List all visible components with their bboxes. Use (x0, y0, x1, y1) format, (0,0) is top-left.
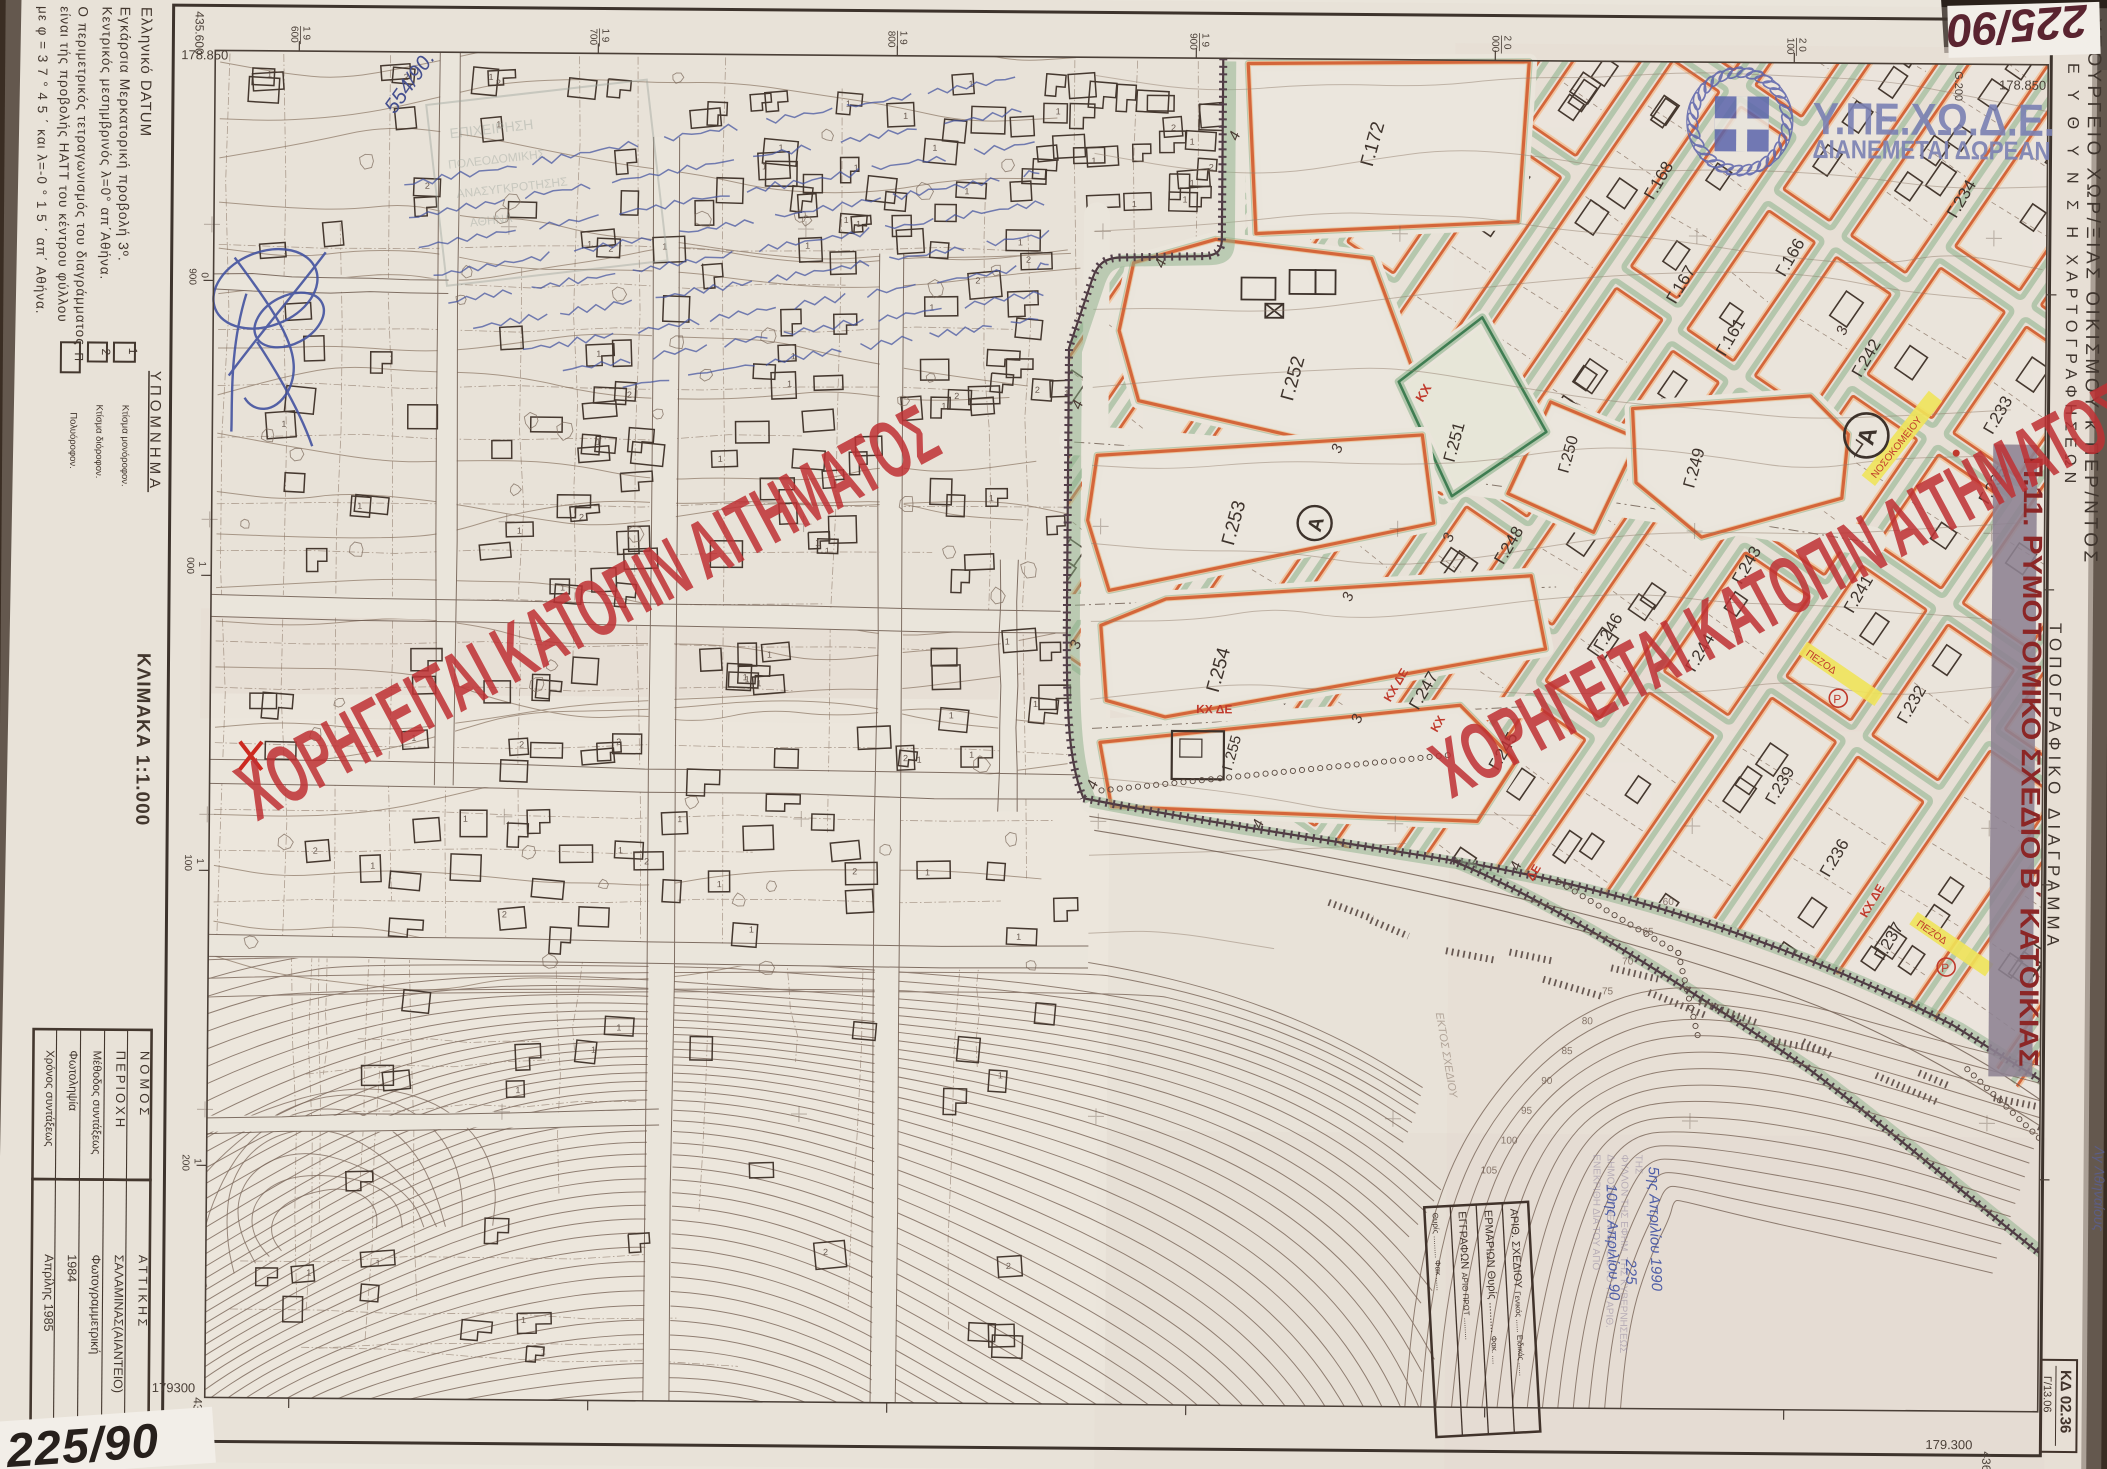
svg-text:1: 1 (521, 1315, 526, 1325)
svg-text:2: 2 (644, 856, 649, 866)
svg-text:1: 1 (762, 161, 767, 171)
svg-text:Ρ: Ρ (1941, 961, 1949, 975)
svg-text:200: 200 (180, 1154, 191, 1171)
svg-text:Ρ: Ρ (1833, 692, 1841, 706)
svg-text:1: 1 (517, 526, 522, 536)
svg-text:1: 1 (677, 814, 682, 824)
svg-text:Απρίλης 1985: Απρίλης 1985 (41, 1254, 56, 1332)
svg-text:Π.11. ΡΥΜΟΤΟΜΙΚΟ ΣΧΕΔΙΟ Β΄ ΚΑΤ: Π.11. ΡΥΜΟΤΟΜΙΚΟ ΣΧΕΔΙΟ Β΄ ΚΑΤΟΙΚΙΑΣ (2013, 457, 2048, 1067)
svg-text:2: 2 (616, 737, 621, 747)
svg-text:ΔΙΑΝΕΜΕΤΑΙ ΔΩΡΕΑΝ: ΔΙΑΝΕΜΕΤΑΙ ΔΩΡΕΑΝ (1812, 134, 2050, 166)
svg-text:1: 1 (756, 678, 761, 688)
svg-text:1: 1 (717, 879, 722, 889)
svg-text:1: 1 (281, 419, 286, 429)
svg-text:1: 1 (787, 379, 792, 389)
svg-text:1: 1 (846, 99, 851, 109)
svg-text:2: 2 (975, 276, 980, 286)
svg-text:100: 100 (182, 854, 193, 871)
svg-text:Π: Π (72, 352, 86, 361)
svg-text:1: 1 (126, 348, 140, 355)
svg-text:ΥΠΟΜΝΗΜΑ: ΥΠΟΜΝΗΜΑ (146, 371, 164, 492)
svg-text:Κεντρικός μεσημβρινός λ=0° απ: Κεντρικός μεσημβρινός λ=0° απ΄Αθήνα. (98, 7, 115, 281)
svg-text:Φωτοληψία: Φωτοληψία (66, 1050, 80, 1111)
svg-text:1: 1 (515, 1085, 520, 1095)
svg-text:1: 1 (267, 69, 272, 79)
svg-text:2: 2 (954, 391, 959, 401)
svg-text:ΚΛΙΜΑΚΑ 1:1.000: ΚΛΙΜΑΚΑ 1:1.000 (131, 653, 153, 827)
svg-text:1: 1 (596, 349, 601, 359)
svg-text:10ης Απριλίου 90: 10ης Απριλίου 90 (1602, 1184, 1622, 1301)
svg-text:225/90: 225/90 (4, 1415, 161, 1469)
svg-text:1: 1 (1183, 195, 1188, 205)
svg-text:1: 1 (1016, 932, 1021, 942)
svg-text:1: 1 (194, 858, 205, 864)
svg-text:90: 90 (1541, 1076, 1553, 1087)
svg-text:2: 2 (1006, 1261, 1011, 1271)
svg-text:5ης Απριλίου 1990: 5ης Απριλίου 1990 (1645, 1166, 1665, 1291)
svg-text:Εγκάρσια Μερκατορική προβολή 3: Εγκάρσια Μερκατορική προβολή 3º. (116, 7, 134, 262)
svg-text:600: 600 (288, 26, 299, 43)
svg-text:700: 700 (587, 28, 598, 45)
svg-text:2: 2 (823, 1247, 828, 1257)
svg-text:ΠΕΡΙΟΧΗ: ΠΕΡΙΟΧΗ (113, 1051, 129, 1131)
svg-text:ΣΑΛΑΜΙΝΑΣ(ΑΙΑΝΤΕΙΟ): ΣΑΛΑΜΙΝΑΣ(ΑΙΑΝΤΕΙΟ) (111, 1255, 126, 1394)
svg-text:60: 60 (1663, 897, 1675, 908)
svg-text:65: 65 (1642, 927, 1654, 938)
svg-text:2: 2 (852, 866, 857, 876)
svg-text:ΕΝΕΚΡΙΘΗ ΔΙΑ ΤΟΥ ΑΠΟ: ΕΝΕΚΡΙΘΗ ΔΙΑ ΤΟΥ ΑΠΟ (1590, 1154, 1602, 1270)
svg-text:Φωτογραμμετρική: Φωτογραμμετρική (88, 1254, 103, 1354)
svg-text:2: 2 (903, 753, 908, 763)
svg-text:2 0: 2 0 (1796, 38, 1807, 52)
svg-text:1: 1 (541, 1346, 546, 1356)
svg-text:Λγ Λθηναίους: Λγ Λθηναίους (2091, 1145, 2107, 1231)
svg-text:1: 1 (941, 401, 946, 411)
svg-text:2: 2 (519, 740, 524, 750)
svg-text:800: 800 (885, 31, 896, 48)
svg-text:1: 1 (903, 111, 908, 121)
svg-text:000: 000 (184, 557, 195, 574)
svg-text:1984: 1984 (65, 1254, 79, 1282)
svg-text:ΤΗΣ: ΤΗΣ (1633, 1155, 1644, 1175)
svg-text:2: 2 (608, 244, 613, 254)
svg-text:178.850: 178.850 (1999, 77, 2046, 92)
svg-text:2: 2 (1171, 123, 1176, 133)
svg-text:100: 100 (1784, 38, 1795, 55)
svg-text:000: 000 (1489, 35, 1500, 52)
svg-text:2: 2 (1026, 255, 1031, 265)
svg-text:80: 80 (1582, 1016, 1594, 1027)
svg-text:1: 1 (718, 454, 723, 464)
svg-text:1: 1 (306, 1268, 311, 1278)
svg-text:1: 1 (488, 72, 493, 82)
svg-text:105: 105 (1481, 1165, 1498, 1176)
svg-text:85: 85 (1561, 1046, 1573, 1057)
svg-text:Πολυόροφον.: Πολυόροφον. (67, 412, 78, 469)
svg-text:70: 70 (1622, 957, 1634, 968)
svg-text:1 9: 1 9 (1199, 33, 1210, 47)
svg-text:100: 100 (1501, 1136, 1518, 1147)
svg-text:1: 1 (745, 674, 750, 684)
svg-text:1: 1 (587, 239, 592, 249)
svg-text:1: 1 (825, 546, 830, 556)
svg-text:1: 1 (998, 1070, 1003, 1080)
svg-text:Α Τ Τ Ι Κ Η Σ: Α Τ Τ Ι Κ Η Σ (135, 1255, 150, 1327)
svg-text:1: 1 (949, 710, 954, 720)
svg-text:1: 1 (370, 861, 375, 871)
svg-text:ΝΟΜΟΣ: ΝΟΜΟΣ (137, 1051, 153, 1120)
svg-text:1: 1 (844, 215, 849, 225)
svg-text:2: 2 (496, 78, 501, 88)
svg-text:Κτίσμα μονόροφον.: Κτίσμα μονόροφον. (119, 405, 131, 487)
svg-text:2: 2 (313, 846, 318, 856)
svg-text:436.200: 436.200 (1979, 1451, 1993, 1469)
svg-text:2 0: 2 0 (1501, 36, 1512, 50)
svg-text:2: 2 (627, 390, 632, 400)
svg-text:Μέθοδος συντάξεως: Μέθοδος συντάξεως (90, 1050, 103, 1155)
svg-text:179300: 179300 (152, 1380, 196, 1395)
svg-text:95: 95 (1521, 1106, 1533, 1117)
svg-text:με φ = 3 7 ° 4 5 ΄ και λ=-0: με φ = 3 7 ° 4 5 ΄ και λ=-0 ° 1 5 ΄ απ΄ … (33, 6, 50, 315)
svg-text:2: 2 (99, 349, 113, 356)
svg-text:1: 1 (463, 814, 468, 824)
svg-text:179.300: 179.300 (1925, 1437, 1972, 1452)
svg-text:1: 1 (192, 1158, 203, 1164)
svg-text:είναι τής προβολής ΗΑΤΤ του κέ: είναι τής προβολής ΗΑΤΤ του κέντρου φύλλ… (55, 6, 72, 323)
svg-text:1: 1 (1132, 199, 1137, 209)
svg-text:1: 1 (1005, 636, 1010, 646)
svg-text:1: 1 (1190, 137, 1195, 147)
svg-text:1: 1 (929, 303, 934, 313)
svg-text:1: 1 (618, 845, 623, 855)
svg-text:2: 2 (502, 909, 507, 919)
svg-text:1: 1 (616, 1023, 621, 1033)
svg-text:1: 1 (1190, 178, 1195, 188)
svg-text:1: 1 (856, 219, 861, 229)
svg-text:1: 1 (591, 1045, 596, 1055)
svg-text:1: 1 (1056, 106, 1061, 116)
svg-text:1 9: 1 9 (300, 26, 311, 40)
svg-text:1 9: 1 9 (599, 28, 610, 42)
svg-text:75: 75 (1602, 986, 1614, 997)
svg-text:225: 225 (1622, 1258, 1640, 1285)
svg-text:435.600: 435.600 (192, 11, 206, 55)
svg-text:900: 900 (186, 268, 197, 285)
svg-text:1: 1 (196, 561, 207, 567)
svg-text:1: 1 (749, 925, 754, 935)
svg-text:Ο περιμετρικός τετραγωνισμός τ: Ο περιμετρικός τετραγωνισμός του διαγράμ… (73, 6, 91, 345)
svg-text:1: 1 (805, 241, 810, 251)
svg-text:1: 1 (1033, 699, 1038, 709)
svg-text:Κτίσμα διόροφον.: Κτίσμα διόροφον. (93, 404, 105, 478)
svg-text:1 9: 1 9 (897, 31, 908, 45)
svg-text:1: 1 (925, 867, 930, 877)
svg-text:225/90: 225/90 (1945, 0, 2091, 58)
svg-text:0: 0 (199, 272, 210, 278)
svg-text:900: 900 (1187, 33, 1198, 50)
svg-text:ΥΠΟΥΡΓΕΙΟ ΧΩΡ/ΞΙΑΣ ΟΙΚΙΣΜΟΥ: ΥΠΟΥΡΓΕΙΟ ΧΩΡ/ΞΙΑΣ ΟΙΚΙΣΜΟΥ κ ΠΕΡ/ΝΤΟΣ (2079, 18, 2104, 566)
svg-text:1: 1 (917, 755, 922, 765)
svg-text:Χρόνος συντάξεως: Χρόνος συντάξεως (43, 1050, 56, 1147)
svg-text:2: 2 (579, 512, 584, 522)
svg-text:ΚΧ ΔΕ: ΚΧ ΔΕ (1196, 702, 1232, 716)
svg-text:1: 1 (1091, 156, 1096, 166)
svg-text:1: 1 (969, 750, 974, 760)
svg-text:Ελληνικό DATUM: Ελληνικό DATUM (137, 7, 155, 137)
svg-text:1: 1 (357, 501, 362, 511)
svg-text:1: 1 (596, 437, 601, 447)
svg-text:1: 1 (375, 1258, 380, 1268)
svg-text:1: 1 (767, 650, 772, 660)
svg-text:2: 2 (1035, 385, 1040, 395)
svg-text:1: 1 (989, 493, 994, 503)
svg-text:Γ/13.06: Γ/13.06 (2041, 1376, 2053, 1413)
svg-text:ΚΔ 02.36: ΚΔ 02.36 (2057, 1370, 2074, 1433)
svg-text:1: 1 (932, 143, 937, 153)
